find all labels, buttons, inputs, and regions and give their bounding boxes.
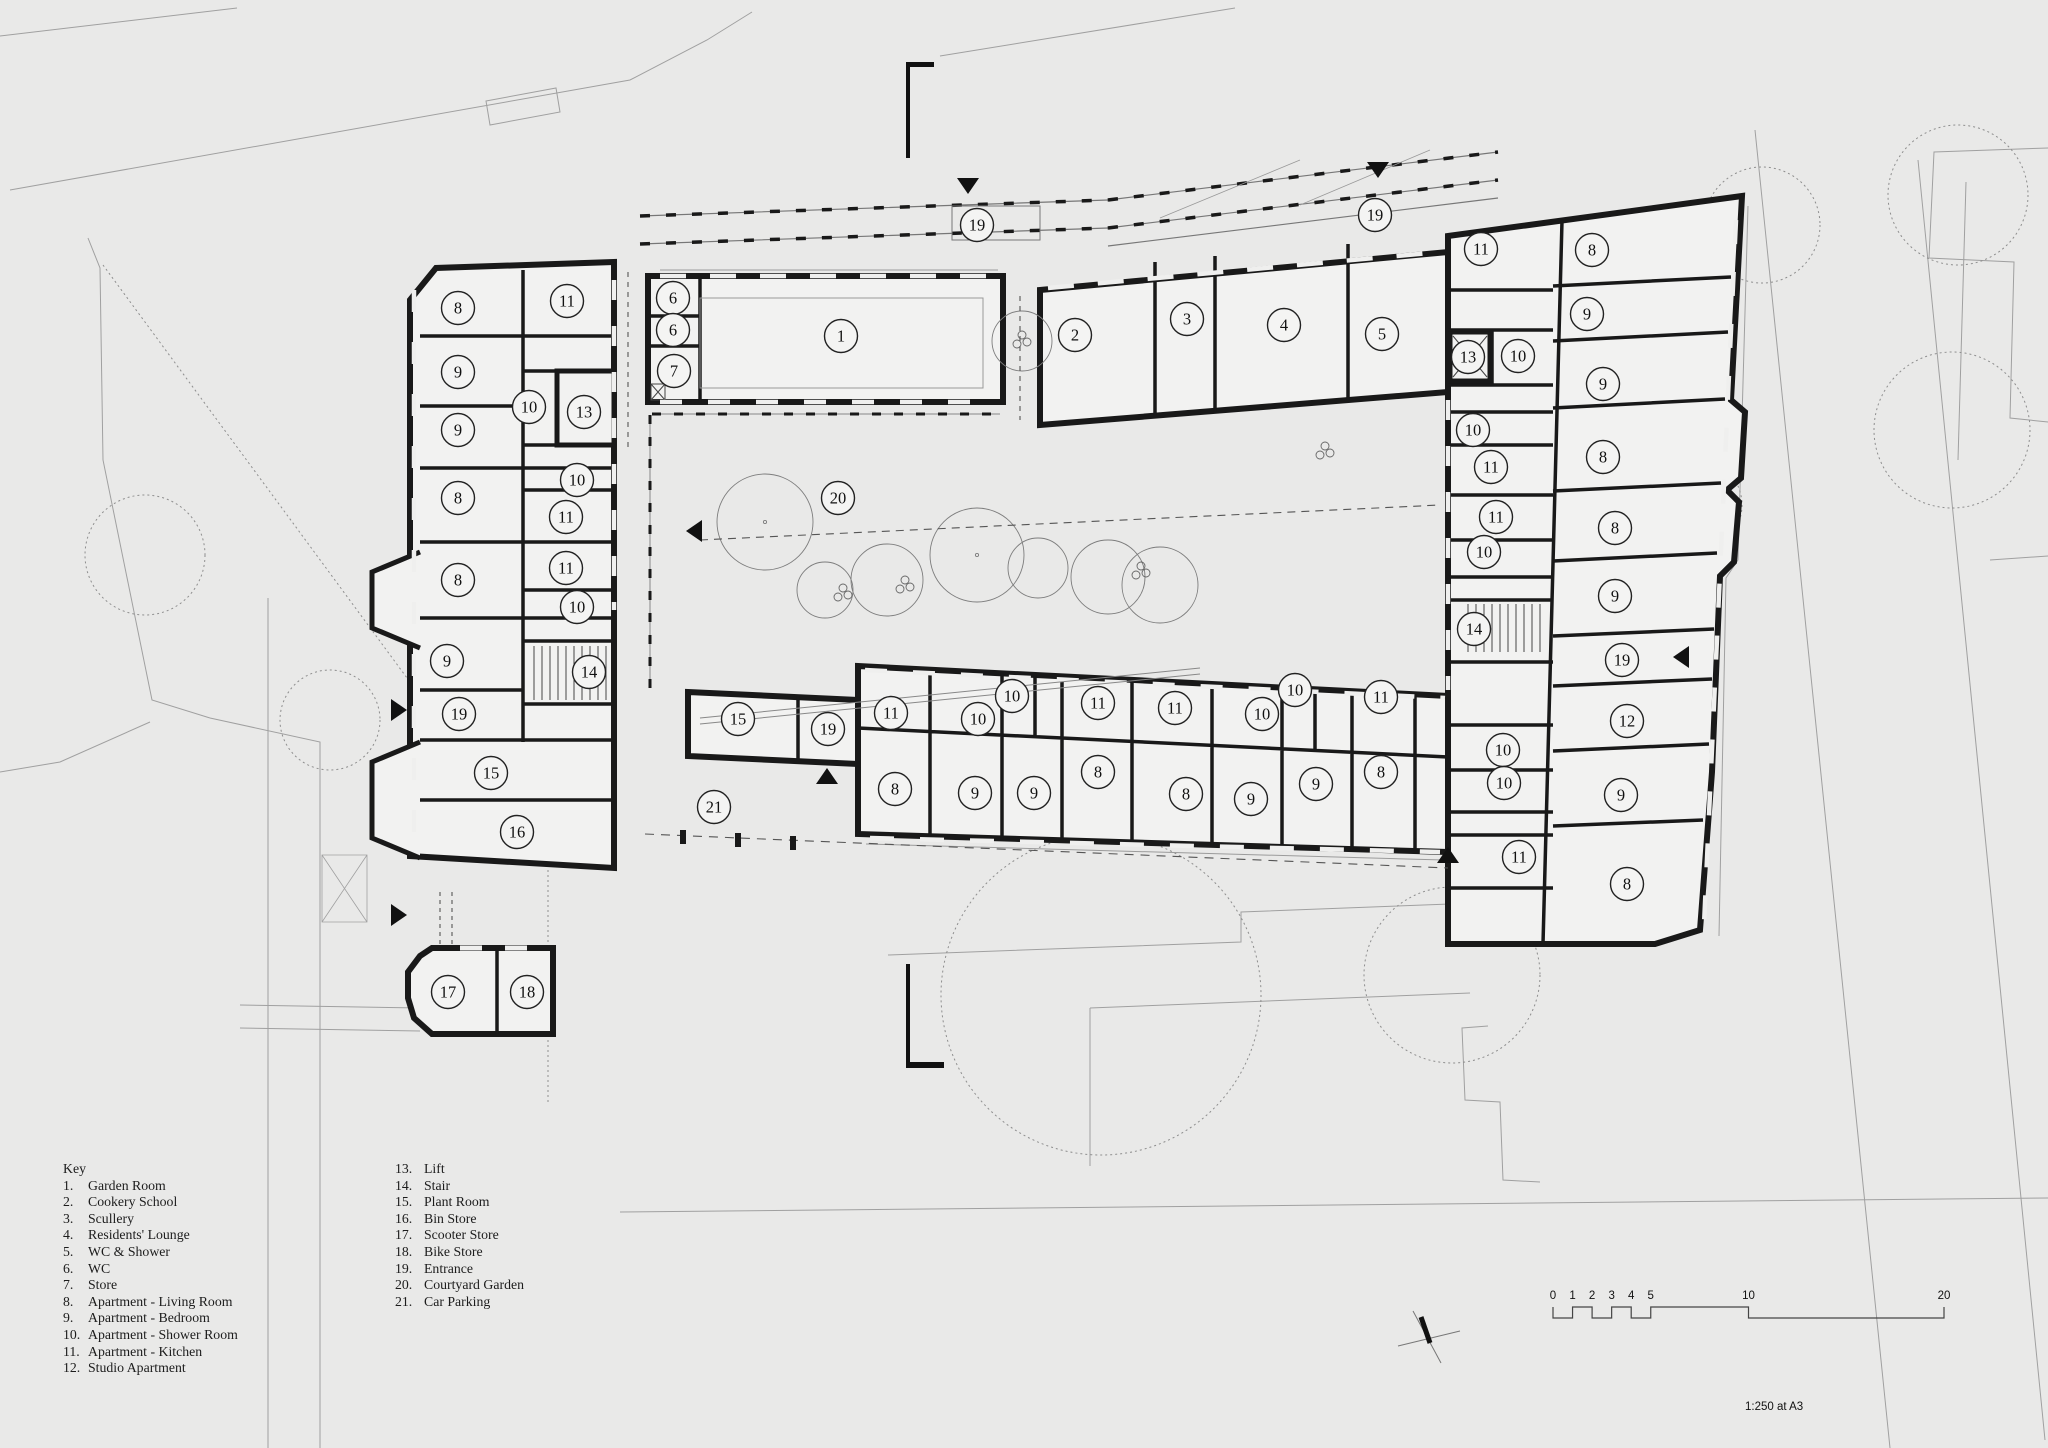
key-item-label: WC [88, 1261, 110, 1276]
room-label: 5 [1366, 318, 1399, 351]
key-item-number: 13. [395, 1161, 424, 1178]
scale-note: 1:250 at A3 [1745, 1401, 1803, 1413]
room-label: 9 [442, 414, 475, 447]
room-label: 11 [1465, 233, 1498, 266]
svg-text:11: 11 [1483, 458, 1499, 477]
key-item-label: Bike Store [424, 1244, 483, 1259]
key-item-number: 11. [63, 1344, 88, 1361]
scale-tick-label: 2 [1589, 1290, 1595, 1302]
key-item: 5.WC & Shower [63, 1244, 383, 1261]
svg-text:11: 11 [883, 704, 899, 723]
key-item-label: Plant Room [424, 1194, 490, 1209]
svg-text:8: 8 [454, 571, 462, 590]
svg-text:11: 11 [1373, 688, 1389, 707]
svg-text:19: 19 [969, 216, 986, 235]
svg-text:9: 9 [1312, 775, 1320, 794]
room-label: 19 [812, 713, 845, 746]
key-item-number: 4. [63, 1227, 88, 1244]
room-label: 11 [1365, 681, 1398, 714]
room-label: 11 [1159, 692, 1192, 725]
svg-text:11: 11 [1167, 699, 1183, 718]
key-item-number: 10. [63, 1327, 88, 1344]
key-item: 10.Apartment - Shower Room [63, 1327, 383, 1344]
svg-text:9: 9 [1030, 784, 1038, 803]
entrance-arrow-icon [816, 768, 838, 784]
key-item-number: 9. [63, 1310, 88, 1327]
key-item-number: 17. [395, 1227, 424, 1244]
key-item: 20.Courtyard Garden [395, 1277, 715, 1294]
svg-text:7: 7 [670, 362, 678, 381]
key-item-label: Store [88, 1277, 117, 1292]
room-label: 4 [1268, 309, 1301, 342]
svg-text:21: 21 [706, 798, 723, 817]
svg-text:10: 10 [1287, 681, 1304, 700]
room-label: 10 [962, 703, 995, 736]
key-item: 16.Bin Store [395, 1211, 715, 1228]
svg-text:13: 13 [1460, 348, 1477, 367]
key-item-label: Apartment - Bedroom [88, 1310, 210, 1325]
key-item: 2.Cookery School [63, 1194, 383, 1211]
room-label: 8 [1082, 756, 1115, 789]
entrance-arrow-icon [957, 178, 979, 194]
svg-text:4: 4 [1280, 316, 1288, 335]
key-item-label: Bin Store [424, 1211, 477, 1226]
room-label: 10 [1487, 734, 1520, 767]
room-label: 11 [1082, 687, 1115, 720]
svg-text:10: 10 [569, 471, 586, 490]
key-item: 4.Residents' Lounge [63, 1227, 383, 1244]
key-item: 19.Entrance [395, 1261, 715, 1278]
key-item-label: Lift [424, 1161, 445, 1176]
svg-text:11: 11 [1488, 508, 1504, 527]
svg-text:2: 2 [1071, 326, 1079, 345]
room-label: 10 [1246, 698, 1279, 731]
scale-tick-label: 10 [1742, 1290, 1755, 1302]
entrance-arrow-icon [391, 904, 407, 926]
room-label: 10 [561, 591, 594, 624]
scale-tick-label: 3 [1608, 1290, 1614, 1302]
svg-text:15: 15 [730, 710, 747, 729]
room-label: 8 [1576, 234, 1609, 267]
svg-text:10: 10 [1465, 421, 1482, 440]
svg-text:3: 3 [1183, 310, 1191, 329]
key-item-number: 12. [63, 1360, 88, 1377]
svg-text:8: 8 [454, 299, 462, 318]
svg-text:5: 5 [1378, 325, 1386, 344]
svg-text:17: 17 [440, 983, 457, 1002]
svg-text:8: 8 [1599, 448, 1607, 467]
room-label: 9 [442, 356, 475, 389]
room-label: 8 [1587, 441, 1620, 474]
svg-text:9: 9 [454, 363, 462, 382]
svg-text:8: 8 [1588, 241, 1596, 260]
svg-text:1: 1 [837, 327, 845, 346]
room-label: 15 [475, 757, 508, 790]
svg-text:8: 8 [891, 780, 899, 799]
svg-text:13: 13 [576, 403, 593, 422]
room-label: 3 [1171, 303, 1204, 336]
key-item-number: 1. [63, 1178, 88, 1195]
svg-text:10: 10 [1254, 705, 1271, 724]
room-label: 1 [825, 320, 858, 353]
key-item-label: Residents' Lounge [88, 1227, 190, 1242]
room-label: 15 [722, 703, 755, 736]
room-label: 6 [657, 282, 690, 315]
room-label: 6 [657, 314, 690, 347]
room-label: 11 [1475, 451, 1508, 484]
key-item-number: 2. [63, 1194, 88, 1211]
key-item-number: 7. [63, 1277, 88, 1294]
key-item: 15.Plant Room [395, 1194, 715, 1211]
scale-tick-label: 20 [1938, 1290, 1951, 1302]
room-label: 14 [573, 656, 606, 689]
key-item: 11.Apartment - Kitchen [63, 1344, 383, 1361]
svg-text:10: 10 [1510, 347, 1527, 366]
key-item: 21.Car Parking [395, 1294, 715, 1311]
svg-text:11: 11 [558, 559, 574, 578]
key-item-number: 19. [395, 1261, 424, 1278]
key-column-2: 13.Lift14.Stair15.Plant Room16.Bin Store… [395, 1161, 715, 1310]
svg-text:9: 9 [971, 784, 979, 803]
room-label: 10 [513, 391, 546, 424]
key-item-number: 16. [395, 1211, 424, 1228]
room-label: 19 [443, 698, 476, 731]
room-label: 10 [1502, 340, 1535, 373]
room-label: 10 [1468, 536, 1501, 569]
room-label: 16 [501, 816, 534, 849]
svg-text:10: 10 [1004, 687, 1021, 706]
svg-text:10: 10 [1496, 774, 1513, 793]
key-item: 18.Bike Store [395, 1244, 715, 1261]
key-item: 8.Apartment - Living Room [63, 1294, 383, 1311]
svg-text:14: 14 [581, 663, 598, 682]
room-label: 10 [1457, 414, 1490, 447]
room-label: 8 [442, 292, 475, 325]
room-label: 19 [1359, 199, 1392, 232]
room-label: 9 [1599, 580, 1632, 613]
key-item-label: Cookery School [88, 1194, 177, 1209]
entrance-arrow-icon [686, 520, 702, 542]
key-item-label: Car Parking [424, 1294, 490, 1309]
room-label: 7 [658, 355, 691, 388]
key-item-number: 20. [395, 1277, 424, 1294]
room-label: 2 [1059, 319, 1092, 352]
room-label: 17 [432, 976, 465, 1009]
room-label: 11 [875, 697, 908, 730]
svg-text:8: 8 [1611, 519, 1619, 538]
svg-text:9: 9 [1247, 790, 1255, 809]
svg-text:8: 8 [1623, 875, 1631, 894]
key-column-1: Key 1.Garden Room2.Cookery School3.Scull… [63, 1161, 383, 1377]
room-label: 13 [568, 396, 601, 429]
room-label: 19 [1606, 644, 1639, 677]
room-label: 14 [1458, 613, 1491, 646]
svg-text:20: 20 [830, 489, 847, 508]
room-label: 8 [1170, 778, 1203, 811]
key-item-label: WC & Shower [88, 1244, 170, 1259]
room-label: 10 [561, 464, 594, 497]
svg-text:9: 9 [454, 421, 462, 440]
svg-text:12: 12 [1619, 712, 1636, 731]
key-item-number: 14. [395, 1178, 424, 1195]
scale-bar: 0123451020 [1550, 1290, 1951, 1318]
svg-text:16: 16 [509, 823, 526, 842]
room-label: 18 [511, 976, 544, 1009]
key-item: 9.Apartment - Bedroom [63, 1310, 383, 1327]
room-label: 13 [1452, 341, 1485, 374]
svg-text:14: 14 [1466, 620, 1483, 639]
svg-text:9: 9 [1617, 786, 1625, 805]
svg-text:9: 9 [443, 652, 451, 671]
key-item-number: 15. [395, 1194, 424, 1211]
key-item-label: Scooter Store [424, 1227, 499, 1242]
scale-bar-rule [1553, 1307, 1944, 1318]
key-heading: Key [63, 1161, 383, 1178]
svg-text:9: 9 [1599, 375, 1607, 394]
key-item-label: Courtyard Garden [424, 1277, 524, 1292]
room-label: 19 [961, 209, 994, 242]
key-item: 6.WC [63, 1261, 383, 1278]
svg-text:8: 8 [1377, 763, 1385, 782]
room-label: 9 [1300, 768, 1333, 801]
svg-text:11: 11 [558, 508, 574, 527]
key-item-number: 8. [63, 1294, 88, 1311]
key-item-label: Studio Apartment [88, 1360, 186, 1375]
svg-text:10: 10 [1495, 741, 1512, 760]
room-label: 9 [1018, 777, 1051, 810]
key-item: 3.Scullery [63, 1211, 383, 1228]
key-item: 17.Scooter Store [395, 1227, 715, 1244]
svg-text:18: 18 [519, 983, 536, 1002]
room-label: 12 [1611, 705, 1644, 738]
key-item-label: Garden Room [88, 1178, 166, 1193]
scale-tick-label: 4 [1628, 1290, 1635, 1302]
room-label: 11 [1480, 501, 1513, 534]
key-item: 14.Stair [395, 1178, 715, 1195]
key-item-label: Apartment - Living Room [88, 1294, 232, 1309]
svg-text:10: 10 [970, 710, 987, 729]
room-label: 8 [1611, 868, 1644, 901]
room-label: 10 [996, 680, 1029, 713]
scale-tick-label: 0 [1550, 1290, 1556, 1302]
room-label: 9 [431, 645, 464, 678]
svg-text:19: 19 [1614, 651, 1631, 670]
section-marker [906, 62, 944, 1068]
room-label: 11 [550, 501, 583, 534]
svg-text:11: 11 [1473, 240, 1489, 259]
svg-text:15: 15 [483, 764, 500, 783]
key-item: 13.Lift [395, 1161, 715, 1178]
room-label: 11 [551, 285, 584, 318]
survey-cross-icon [1398, 1311, 1460, 1363]
key-item-label: Apartment - Shower Room [88, 1327, 238, 1342]
svg-text:11: 11 [559, 292, 575, 311]
room-label: 9 [1605, 779, 1638, 812]
entrance-arrow-icon [391, 699, 407, 721]
room-label: 8 [1365, 756, 1398, 789]
room-label: 10 [1488, 767, 1521, 800]
room-label: 11 [550, 552, 583, 585]
room-label: 9 [959, 777, 992, 810]
key-item-label: Stair [424, 1178, 450, 1193]
room-label: 8 [442, 482, 475, 515]
room-label: 8 [442, 564, 475, 597]
svg-text:9: 9 [1583, 305, 1591, 324]
key-item-label: Apartment - Kitchen [88, 1344, 202, 1359]
key-item-label: Scullery [88, 1211, 134, 1226]
scale-tick-label: 5 [1648, 1290, 1654, 1302]
room-label: 8 [1599, 512, 1632, 545]
room-label: 8 [879, 773, 912, 806]
room-label: 9 [1587, 368, 1620, 401]
svg-text:8: 8 [1094, 763, 1102, 782]
svg-text:8: 8 [454, 489, 462, 508]
svg-text:10: 10 [569, 598, 586, 617]
key-item: 12.Studio Apartment [63, 1360, 383, 1377]
key-item-number: 6. [63, 1261, 88, 1278]
room-label: 11 [1503, 841, 1536, 874]
svg-text:9: 9 [1611, 587, 1619, 606]
key-item-number: 5. [63, 1244, 88, 1261]
key-item: 7.Store [63, 1277, 383, 1294]
room-label: 9 [1235, 783, 1268, 816]
key-item-number: 18. [395, 1244, 424, 1261]
room-label: 9 [1571, 298, 1604, 331]
svg-text:10: 10 [1476, 543, 1493, 562]
room-label: 20 [822, 482, 855, 515]
key-item-number: 21. [395, 1294, 424, 1311]
svg-text:11: 11 [1511, 848, 1527, 867]
svg-text:6: 6 [669, 321, 677, 340]
svg-text:11: 11 [1090, 694, 1106, 713]
key-item-label: Entrance [424, 1261, 473, 1276]
svg-text:19: 19 [451, 705, 468, 724]
svg-text:8: 8 [1182, 785, 1190, 804]
room-label: 21 [698, 791, 731, 824]
scale-tick-label: 1 [1569, 1290, 1575, 1302]
room-label: 10 [1279, 674, 1312, 707]
drawing-sheet: 8119101398101111810914191516171866711923… [0, 0, 2048, 1448]
svg-text:10: 10 [521, 398, 538, 417]
svg-text:6: 6 [669, 289, 677, 308]
svg-text:19: 19 [1367, 206, 1384, 225]
svg-text:19: 19 [820, 720, 837, 739]
key-item: 1.Garden Room [63, 1178, 383, 1195]
key-item-number: 3. [63, 1211, 88, 1228]
